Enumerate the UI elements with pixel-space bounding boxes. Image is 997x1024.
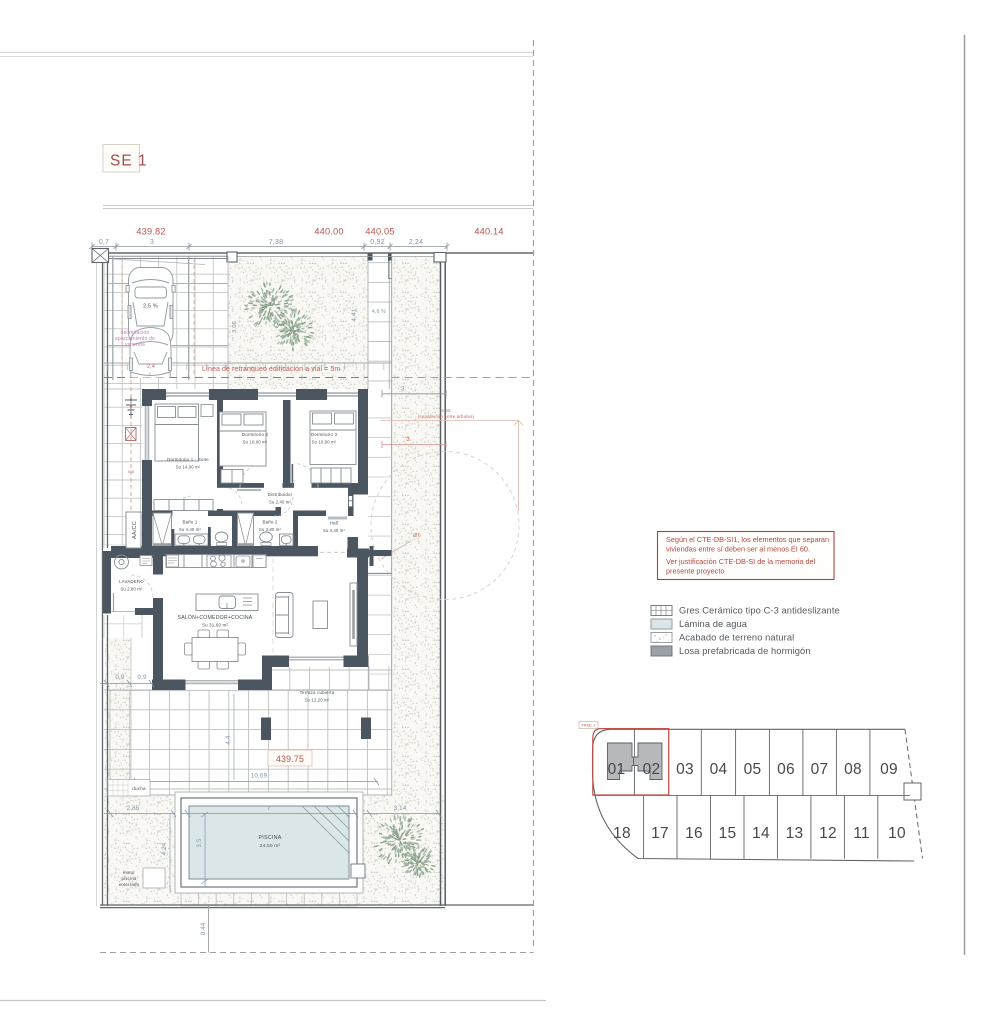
svg-text:Distribuidor: Distribuidor xyxy=(268,492,293,497)
svg-text:Dormitorio 1 - Suite: Dormitorio 1 - Suite xyxy=(167,457,209,462)
svg-text:2,5 %: 2,5 % xyxy=(143,304,158,310)
svg-text:ducha: ducha xyxy=(132,786,146,791)
svg-text:11: 11 xyxy=(853,825,870,842)
svg-text:(separación entre árboles): (separación entre árboles) xyxy=(418,414,475,419)
svg-text:7,38: 7,38 xyxy=(269,239,283,246)
svg-text:3,5: 3,5 xyxy=(196,838,203,848)
svg-text:Su 2,80 m²: Su 2,80 m² xyxy=(120,587,142,592)
svg-text:Losa prefabricada de hormigón: Losa prefabricada de hormigón xyxy=(679,646,811,656)
svg-text:2,4: 2,4 xyxy=(147,364,155,370)
svg-text:440.14: 440.14 xyxy=(474,227,503,237)
svg-text:15: 15 xyxy=(719,825,737,842)
svg-text:vivienda: vivienda xyxy=(125,342,145,348)
svg-text:Su 10,00 m²: Su 10,00 m² xyxy=(243,440,268,445)
svg-text:Dormitorio 2: Dormitorio 2 xyxy=(242,432,269,437)
svg-text:Hall: Hall xyxy=(330,521,338,526)
svg-text:3,14: 3,14 xyxy=(394,805,407,812)
svg-text:Acabado de terreno natural: Acabado de terreno natural xyxy=(679,633,794,643)
svg-text:2,85: 2,85 xyxy=(127,805,140,812)
svg-text:03: 03 xyxy=(676,761,694,778)
svg-text:motor: motor xyxy=(123,870,136,875)
svg-text:Su 12,20 m²: Su 12,20 m² xyxy=(305,698,330,703)
svg-text:06: 06 xyxy=(777,761,795,778)
svg-text:05: 05 xyxy=(744,761,762,778)
svg-text:4,50: 4,50 xyxy=(441,408,451,413)
svg-text:Su 2,40 m²: Su 2,40 m² xyxy=(269,500,291,505)
svg-text:439.82: 439.82 xyxy=(136,227,165,237)
svg-text:14: 14 xyxy=(752,825,770,842)
svg-text:10,69: 10,69 xyxy=(251,773,268,780)
svg-text:Su 10,00 m²: Su 10,00 m² xyxy=(312,440,337,445)
svg-text:04: 04 xyxy=(710,761,728,778)
svg-text:SALÓN+COMEDOR+COCINA: SALÓN+COMEDOR+COCINA xyxy=(178,614,253,621)
svg-text:LAVADERO: LAVADERO xyxy=(119,579,144,584)
svg-text:0,9: 0,9 xyxy=(115,674,125,681)
svg-text:Gres Cerámico tipo C-3 antides: Gres Cerámico tipo C-3 antideslizante xyxy=(679,606,840,616)
svg-text:16: 16 xyxy=(685,825,703,842)
svg-text:17: 17 xyxy=(651,825,669,842)
svg-text:FASE 1: FASE 1 xyxy=(581,724,595,728)
svg-text:Baño 1: Baño 1 xyxy=(182,520,197,525)
svg-text:0,92: 0,92 xyxy=(370,239,384,246)
svg-text:Ø6: Ø6 xyxy=(413,533,421,539)
svg-text:01: 01 xyxy=(608,761,626,778)
svg-text:4,41: 4,41 xyxy=(351,308,358,321)
svg-text:09: 09 xyxy=(880,761,898,778)
svg-text:Su 3,80 m²: Su 3,80 m² xyxy=(259,527,281,532)
svg-text:Ver justificación CTE-DB-SI de: Ver justificación CTE-DB-SI de la memori… xyxy=(666,557,816,566)
svg-text:12: 12 xyxy=(819,825,837,842)
svg-text:440.05: 440.05 xyxy=(365,227,394,237)
svg-text:Su 4,40 m²: Su 4,40 m² xyxy=(323,528,345,533)
svg-text:Lámina de agua: Lámina de agua xyxy=(679,619,748,629)
svg-text:piscina: piscina xyxy=(121,876,136,881)
svg-text:Su 31,60 m²: Su 31,60 m² xyxy=(202,623,228,628)
svg-text:3: 3 xyxy=(406,436,410,443)
svg-text:enterrado: enterrado xyxy=(119,882,140,887)
svg-text:0,44: 0,44 xyxy=(200,922,207,935)
svg-text:7: 7 xyxy=(267,805,271,812)
svg-text:07: 07 xyxy=(811,761,829,778)
svg-text:s: s xyxy=(149,372,151,376)
svg-text:440.00: 440.00 xyxy=(314,227,343,237)
svg-text:4,6 %: 4,6 % xyxy=(372,309,386,315)
svg-text:PISCINA: PISCINA xyxy=(259,835,282,841)
svg-text:18: 18 xyxy=(613,825,631,842)
svg-text:presente proyecto: presente proyecto xyxy=(666,567,724,576)
svg-text:AA/CC: AA/CC xyxy=(132,521,138,539)
svg-text:Terraza cubierta: Terraza cubierta xyxy=(300,690,335,695)
svg-text:Según el CTE-DB-SI1, los eleme: Según el CTE-DB-SI1, los elementos que s… xyxy=(666,535,829,544)
svg-text:3: 3 xyxy=(150,239,154,246)
svg-text:02: 02 xyxy=(643,761,661,778)
svg-text:0,9: 0,9 xyxy=(137,674,147,681)
svg-text:Dormitorio 3: Dormitorio 3 xyxy=(311,432,338,437)
svg-text:0,8: 0,8 xyxy=(128,469,135,474)
svg-text:SE 1: SE 1 xyxy=(110,153,148,170)
svg-text:4,4: 4,4 xyxy=(225,735,232,745)
svg-text:13: 13 xyxy=(786,825,804,842)
svg-text:24,50 m²: 24,50 m² xyxy=(260,843,281,849)
svg-text:0,7: 0,7 xyxy=(99,239,109,246)
svg-text:Línea de retranqueo edificació: Línea de retranqueo edificación a vial =… xyxy=(202,366,340,373)
svg-text:3,06: 3,06 xyxy=(232,321,238,333)
svg-text:2,24: 2,24 xyxy=(409,239,423,246)
svg-text:Baño 2: Baño 2 xyxy=(262,520,277,525)
svg-text:viviendas entre sí deben ser a: viviendas entre sí deben ser al menos EI… xyxy=(666,545,810,554)
svg-text:439.75: 439.75 xyxy=(276,754,304,764)
svg-text:10: 10 xyxy=(888,825,906,842)
svg-text:Su 4,40 m²: Su 4,40 m² xyxy=(179,527,201,532)
svg-text:3: 3 xyxy=(401,386,405,393)
svg-text:4,24: 4,24 xyxy=(161,842,168,855)
svg-text:Su 14,00 m²: Su 14,00 m² xyxy=(176,465,201,470)
svg-text:08: 08 xyxy=(844,761,862,778)
